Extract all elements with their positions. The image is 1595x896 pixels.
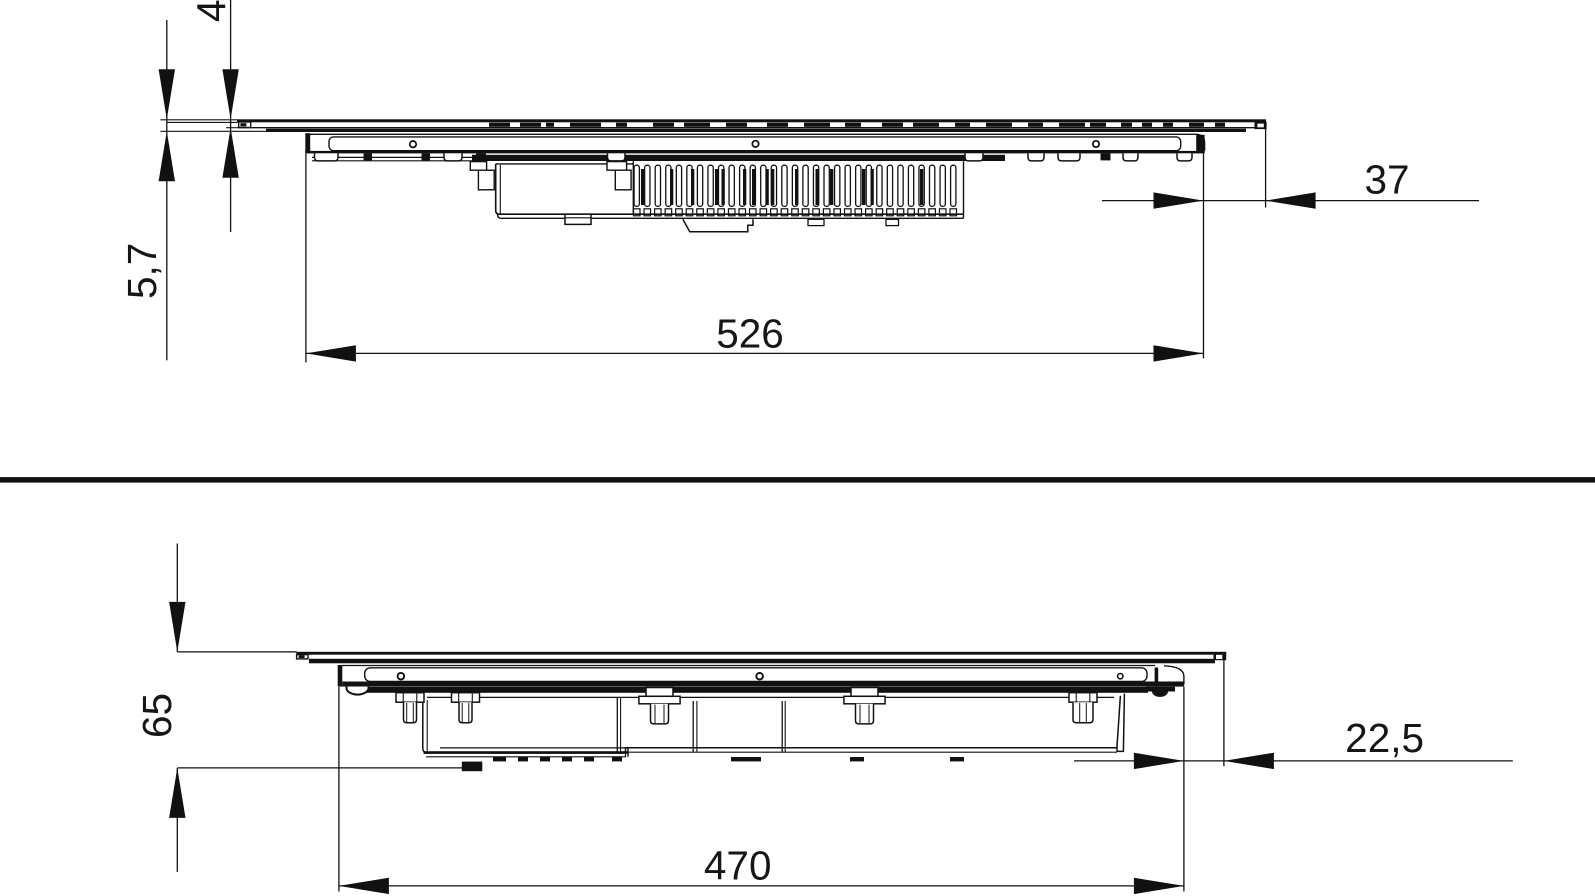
svg-text:37: 37 <box>1364 157 1409 203</box>
svg-text:5,7: 5,7 <box>119 243 165 299</box>
svg-text:526: 526 <box>716 311 784 357</box>
svg-text:4: 4 <box>189 0 235 22</box>
svg-text:470: 470 <box>704 842 772 888</box>
svg-text:65: 65 <box>134 693 180 738</box>
svg-text:22,5: 22,5 <box>1345 715 1424 761</box>
